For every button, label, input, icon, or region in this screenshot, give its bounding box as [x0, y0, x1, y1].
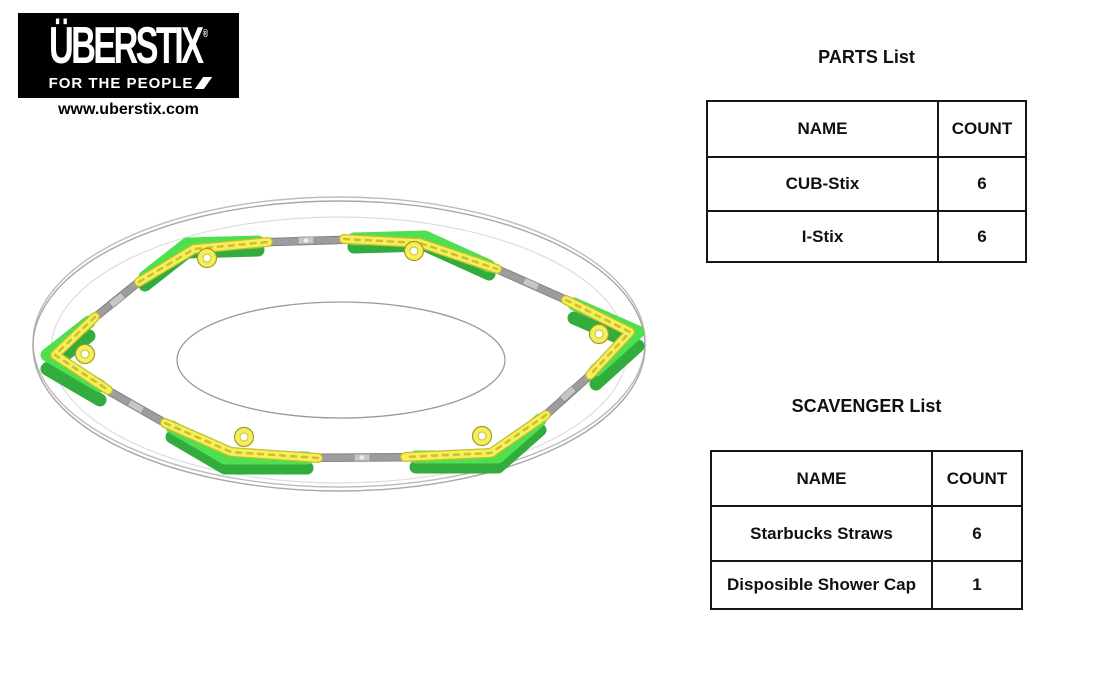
cap-rim-bottom-edge	[33, 201, 645, 491]
parts-row-name: I-Stix	[708, 210, 937, 261]
scavenger-row-count: 1	[931, 560, 1021, 608]
parts-header-count: COUNT	[937, 102, 1025, 156]
uberstix-logo: ÜBERSTIX® FOR THE PEOPLE www.uberstix.co…	[18, 13, 239, 119]
brand-text: ÜBERSTIX	[49, 17, 201, 75]
cap-center-hole	[177, 302, 505, 418]
brand-wordmark: ÜBERSTIX®	[49, 20, 208, 72]
scavenger-row-name: Disposible Shower Cap	[712, 560, 931, 608]
scavenger-header-name: NAME	[712, 452, 931, 505]
cub-stix-corners	[47, 237, 638, 468]
parts-row-count: 6	[937, 156, 1025, 210]
parts-list-table: NAME COUNT CUB-Stix 6 I-Stix 6	[706, 100, 1027, 263]
parts-list-title: PARTS List	[706, 47, 1027, 68]
scavenger-list-table: NAME COUNT Starbucks Straws 6 Disposible…	[710, 450, 1023, 610]
parts-row-count: 6	[937, 210, 1025, 261]
tagline-slash-icon	[195, 77, 212, 89]
parts-header-name: NAME	[708, 102, 937, 156]
parts-row-name: CUB-Stix	[708, 156, 937, 210]
registered-trademark-icon: ®	[203, 28, 208, 40]
ring-assembly-illustration	[20, 192, 670, 504]
scavenger-list-title: SCAVENGER List	[710, 396, 1023, 417]
logo-black-box: ÜBERSTIX® FOR THE PEOPLE	[18, 13, 239, 98]
website-url: www.uberstix.com	[18, 101, 239, 119]
tagline-text: FOR THE PEOPLE	[49, 75, 194, 92]
scavenger-row-count: 6	[931, 505, 1021, 560]
cap-inner-shadow	[51, 217, 627, 483]
brand-tagline: FOR THE PEOPLE	[49, 75, 209, 92]
scavenger-row-name: Starbucks Straws	[712, 505, 931, 560]
scavenger-header-count: COUNT	[931, 452, 1021, 505]
page: { "logo": { "brand": "ÜBERSTIX", "regist…	[0, 0, 1100, 687]
